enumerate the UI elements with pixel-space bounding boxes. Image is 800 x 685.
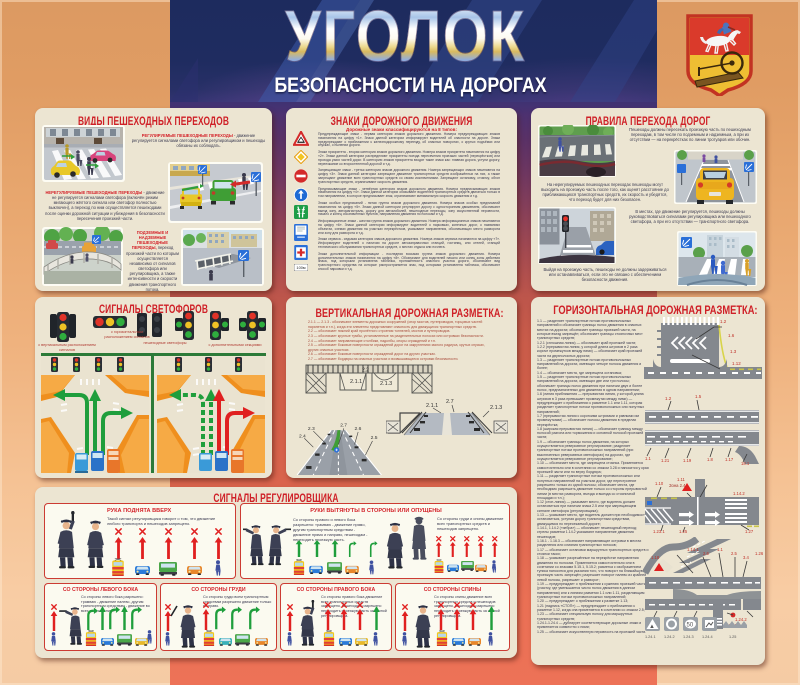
svg-text:2.7: 2.7: [340, 423, 347, 429]
svg-text:18.1: 18.1: [741, 461, 750, 466]
svg-text:1.19: 1.19: [683, 458, 692, 463]
svg-text:1.24.3: 1.24.3: [683, 635, 694, 639]
svg-text:2.1.1: 2.1.1: [350, 379, 362, 385]
svg-text:1.14.1: 1.14.1: [687, 547, 699, 552]
svg-text:1.24.1: 1.24.1: [645, 635, 656, 639]
svg-text:50: 50: [687, 623, 694, 629]
svg-text:1.1: 1.1: [717, 547, 723, 552]
svg-text:2.7: 2.7: [446, 399, 454, 405]
svg-text:100м: 100м: [296, 265, 305, 270]
svg-text:1.27: 1.27: [745, 529, 754, 533]
svg-text:1.24.2: 1.24.2: [664, 635, 675, 639]
svg-text:1.3: 1.3: [730, 349, 737, 354]
svg-text:1.2: 1.2: [720, 319, 727, 324]
svg-text:1.23.1: 1.23.1: [653, 529, 665, 533]
svg-text:1.2: 1.2: [665, 396, 672, 401]
svg-text:1.25: 1.25: [729, 635, 736, 639]
svg-text:1.5: 1.5: [695, 394, 702, 399]
svg-text:2.1.3: 2.1.3: [380, 381, 392, 387]
svg-text:1.14.2: 1.14.2: [733, 491, 745, 496]
svg-text:2.1.1: 2.1.1: [426, 403, 438, 409]
svg-text:1.12: 1.12: [732, 361, 741, 366]
svg-text:1.11: 1.11: [677, 477, 686, 482]
svg-text:1.8: 1.8: [707, 457, 713, 462]
svg-text:3.4: 3.4: [743, 555, 749, 560]
svg-text:2.6: 2.6: [355, 426, 362, 432]
svg-text:1.25: 1.25: [679, 529, 688, 533]
svg-text:1.17: 1.17: [725, 457, 734, 462]
svg-text:1.24.4: 1.24.4: [702, 635, 713, 639]
svg-text:2.5: 2.5: [731, 551, 737, 556]
svg-text:1.6: 1.6: [728, 333, 735, 338]
svg-text:2.4: 2.4: [299, 433, 306, 439]
svg-text:Зона 2.4: Зона 2.4: [669, 483, 686, 488]
svg-text:1.21: 1.21: [661, 458, 670, 463]
svg-text:1.1: 1.1: [645, 456, 651, 461]
svg-text:1.26: 1.26: [755, 551, 763, 556]
svg-text:1.10: 1.10: [655, 481, 664, 486]
svg-text:2.2: 2.2: [362, 368, 369, 374]
svg-text:2.3: 2.3: [308, 426, 315, 432]
svg-text:▲: ▲: [649, 624, 655, 630]
svg-text:2.1.3: 2.1.3: [490, 405, 502, 411]
svg-text:2.5: 2.5: [371, 435, 378, 441]
svg-text:1.18: 1.18: [651, 555, 660, 560]
svg-text:2.6: 2.6: [703, 551, 709, 556]
